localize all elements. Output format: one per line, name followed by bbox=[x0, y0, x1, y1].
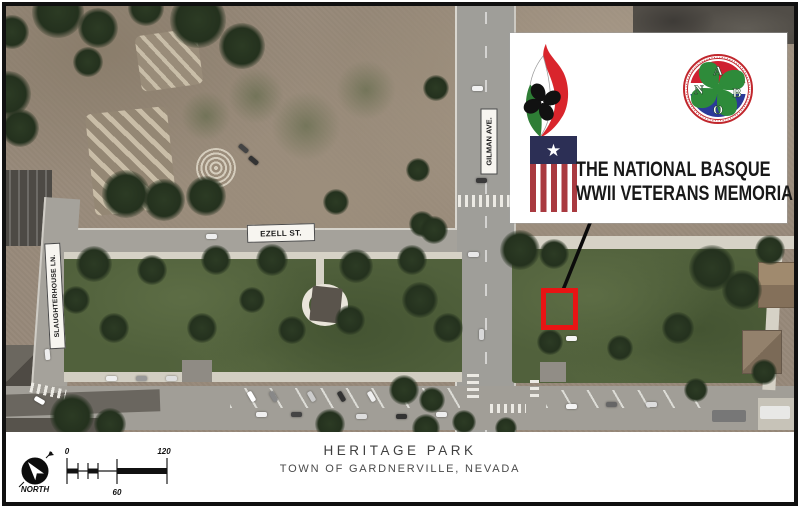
memorial-flag-stripes bbox=[530, 164, 577, 212]
tree bbox=[339, 249, 373, 283]
parked-car bbox=[238, 143, 250, 154]
tree bbox=[397, 245, 427, 275]
tree bbox=[128, 6, 164, 26]
tree bbox=[73, 47, 103, 77]
tree bbox=[278, 316, 306, 344]
tree bbox=[684, 378, 708, 402]
scrub-patch bbox=[336, 60, 396, 120]
nabo-letter-b: B bbox=[733, 85, 742, 100]
poster-frame: EZELL ST. GILMAN AVE. SLAUGHTERHOUSE LN. bbox=[2, 2, 798, 506]
tree bbox=[137, 255, 167, 285]
parked-car bbox=[566, 404, 577, 409]
nabo-letter-n: N bbox=[694, 82, 704, 97]
parked-car bbox=[468, 252, 479, 257]
tree bbox=[32, 6, 84, 38]
tree bbox=[419, 387, 445, 413]
tree bbox=[315, 409, 345, 432]
park-name: HERITAGE PARK bbox=[6, 443, 794, 458]
nabo-letter-a: A bbox=[713, 63, 723, 78]
tree bbox=[239, 287, 265, 313]
street-label-ezell: EZELL ST. bbox=[247, 223, 315, 243]
tree bbox=[406, 158, 430, 182]
parked-car bbox=[269, 390, 279, 402]
tree bbox=[433, 313, 463, 343]
tree bbox=[751, 359, 777, 385]
map-caption: HERITAGE PARK TOWN OF GARDNERVILLE, NEVA… bbox=[6, 443, 794, 475]
tree bbox=[722, 270, 762, 310]
parked-car bbox=[646, 402, 657, 407]
parked-car bbox=[396, 414, 407, 419]
scale-mid: 60 bbox=[113, 488, 122, 497]
tree bbox=[412, 414, 440, 432]
tree bbox=[6, 109, 39, 147]
parked-car bbox=[256, 412, 267, 417]
parked-car bbox=[472, 86, 483, 91]
tree bbox=[607, 335, 633, 361]
memorial-title-panel: A N B O ★ THE NATIONAL BASQUE WWII VETER… bbox=[510, 33, 787, 223]
parked-car bbox=[367, 390, 377, 402]
tree bbox=[78, 8, 118, 48]
tree bbox=[94, 408, 126, 432]
tree bbox=[62, 286, 90, 314]
parked-car bbox=[566, 336, 577, 341]
parked-car bbox=[45, 349, 51, 360]
parked-car bbox=[206, 234, 217, 239]
street-label-text: EZELL ST. bbox=[260, 228, 302, 238]
street-label-gilman: GILMAN AVE. bbox=[481, 109, 498, 175]
tree bbox=[99, 313, 129, 343]
tree bbox=[500, 230, 540, 270]
tree bbox=[6, 15, 29, 49]
tree bbox=[423, 75, 449, 101]
memorial-flag-canton: ★ bbox=[530, 136, 577, 164]
memorial-site-marker bbox=[541, 288, 578, 330]
street-label-text: GILMAN AVE. bbox=[485, 117, 494, 165]
park-location: TOWN OF GARDNERVILLE, NEVADA bbox=[6, 463, 794, 475]
truck bbox=[760, 406, 790, 419]
tree bbox=[219, 23, 265, 69]
parked-car bbox=[166, 376, 177, 381]
tree bbox=[755, 235, 785, 265]
tree bbox=[420, 216, 448, 244]
parked-car bbox=[33, 396, 45, 406]
parked-car bbox=[291, 412, 302, 417]
parked-car bbox=[606, 402, 617, 407]
scrub-patch bbox=[181, 91, 231, 141]
scrub-patch bbox=[228, 68, 284, 124]
parked-car bbox=[356, 414, 367, 419]
nabo-seal-logo: A N B O bbox=[682, 53, 754, 125]
memorial-title-line1: THE NATIONAL BASQUE bbox=[576, 157, 771, 182]
tree bbox=[143, 179, 185, 221]
parked-car bbox=[106, 376, 117, 381]
basque-flame-lauburu-logo bbox=[516, 43, 574, 139]
parked-car bbox=[247, 390, 257, 402]
tree bbox=[201, 245, 231, 275]
parked-car bbox=[248, 155, 260, 166]
tree bbox=[76, 246, 112, 282]
tree bbox=[50, 394, 94, 432]
tree bbox=[537, 329, 563, 355]
tree bbox=[170, 6, 226, 48]
tree bbox=[335, 305, 365, 335]
street-label-text: SLAUGHTERHOUSE LN. bbox=[49, 254, 60, 337]
tree bbox=[323, 189, 349, 215]
tree bbox=[256, 244, 288, 276]
map-footer: NORTH 0 120 60 HERITAGE PARK TOWN O bbox=[6, 432, 794, 502]
parked-car bbox=[136, 376, 147, 381]
parked-car bbox=[337, 390, 347, 402]
tree bbox=[495, 417, 517, 432]
tree bbox=[539, 239, 569, 269]
tree bbox=[186, 176, 226, 216]
star-icon: ★ bbox=[546, 142, 561, 159]
parked-car bbox=[479, 329, 484, 340]
tree bbox=[662, 312, 694, 344]
truck bbox=[712, 410, 746, 422]
tree bbox=[187, 313, 217, 343]
memorial-title-line2: WWII VETERANS MEMORIAL bbox=[576, 181, 794, 206]
tree bbox=[389, 375, 419, 405]
tree bbox=[402, 282, 438, 318]
memorial-location-poster: EZELL ST. GILMAN AVE. SLAUGHTERHOUSE LN. bbox=[0, 0, 800, 508]
parked-car bbox=[436, 412, 447, 417]
parked-car bbox=[476, 178, 487, 183]
aerial-map: EZELL ST. GILMAN AVE. SLAUGHTERHOUSE LN. bbox=[6, 6, 794, 432]
tree bbox=[452, 410, 476, 432]
parked-car bbox=[307, 390, 317, 402]
north-label: NORTH bbox=[21, 485, 50, 494]
nabo-letter-o: O bbox=[713, 102, 723, 117]
